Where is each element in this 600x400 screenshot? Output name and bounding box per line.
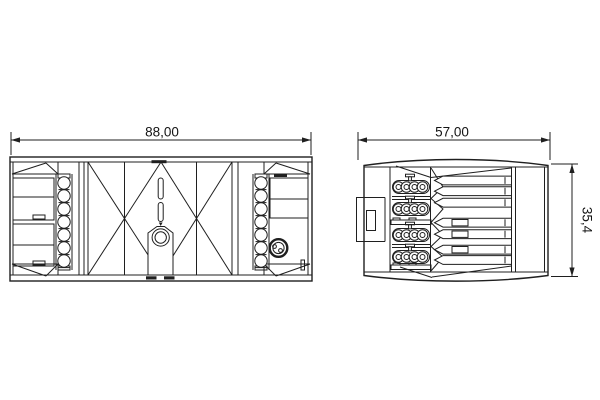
arrowhead-right <box>541 137 550 142</box>
clamp-contact <box>255 229 267 242</box>
clamp-contact <box>255 177 267 190</box>
clamp-contact <box>58 177 70 190</box>
cooling-rib <box>435 230 512 239</box>
strain-relief-slot <box>158 178 163 199</box>
arrowhead-left <box>358 137 367 142</box>
technical-drawing: 88,00 57,00 35,4 <box>0 0 600 400</box>
dimension-label-height-side: 35,4 <box>580 207 595 234</box>
dimension-57: 57,00 <box>358 125 550 161</box>
cooling-rib <box>435 176 512 185</box>
terminal-cluster <box>393 174 430 193</box>
mounting-clip <box>357 198 386 242</box>
terminal-clusters <box>391 174 431 269</box>
dimension-label-width-side: 57,00 <box>435 125 469 140</box>
cooling-rib <box>435 245 512 254</box>
cooling-ribs <box>435 176 512 264</box>
divider-bar <box>391 265 431 270</box>
terminal-housing-left <box>13 178 54 266</box>
clamp-contact <box>58 216 70 229</box>
clamp-contact <box>255 216 267 229</box>
side-view <box>357 160 549 282</box>
clamp-contact <box>58 190 70 203</box>
clamp-contact <box>255 203 267 216</box>
clamp-contact <box>58 229 70 242</box>
corner-gusset-top-left <box>12 162 58 174</box>
cooling-rib <box>435 187 512 196</box>
arrowhead-right <box>302 137 311 142</box>
cooling-rib <box>435 198 512 207</box>
dimension-35-4: 35,4 <box>551 164 595 277</box>
terminal-cluster <box>393 222 430 241</box>
centre-mounting <box>148 178 173 275</box>
cooling-rib <box>435 256 512 265</box>
clamp-contact <box>255 242 267 255</box>
arrowhead-top <box>569 164 574 173</box>
arrowhead-left <box>11 137 20 142</box>
dimension-88: 88,00 <box>11 125 311 156</box>
clamp-strip-right <box>253 174 269 270</box>
drawing-sheet: 88,00 57,00 35,4 <box>0 0 600 400</box>
front-view <box>10 157 312 281</box>
strain-relief-slot <box>158 203 163 222</box>
clamp-strip-left <box>56 174 72 270</box>
cooling-rib <box>435 218 512 227</box>
clamp-contact <box>58 242 70 255</box>
arrowhead-bottom <box>569 268 574 277</box>
potentiometer <box>270 239 288 257</box>
slot-arrow <box>159 223 163 227</box>
clamp-contact <box>255 190 267 203</box>
clamp-contact <box>58 255 70 268</box>
clamp-contact <box>58 203 70 216</box>
dimension-label-width-front: 88,00 <box>145 125 179 140</box>
clamp-contact <box>255 255 267 268</box>
corner-gusset-top-right <box>264 162 310 174</box>
